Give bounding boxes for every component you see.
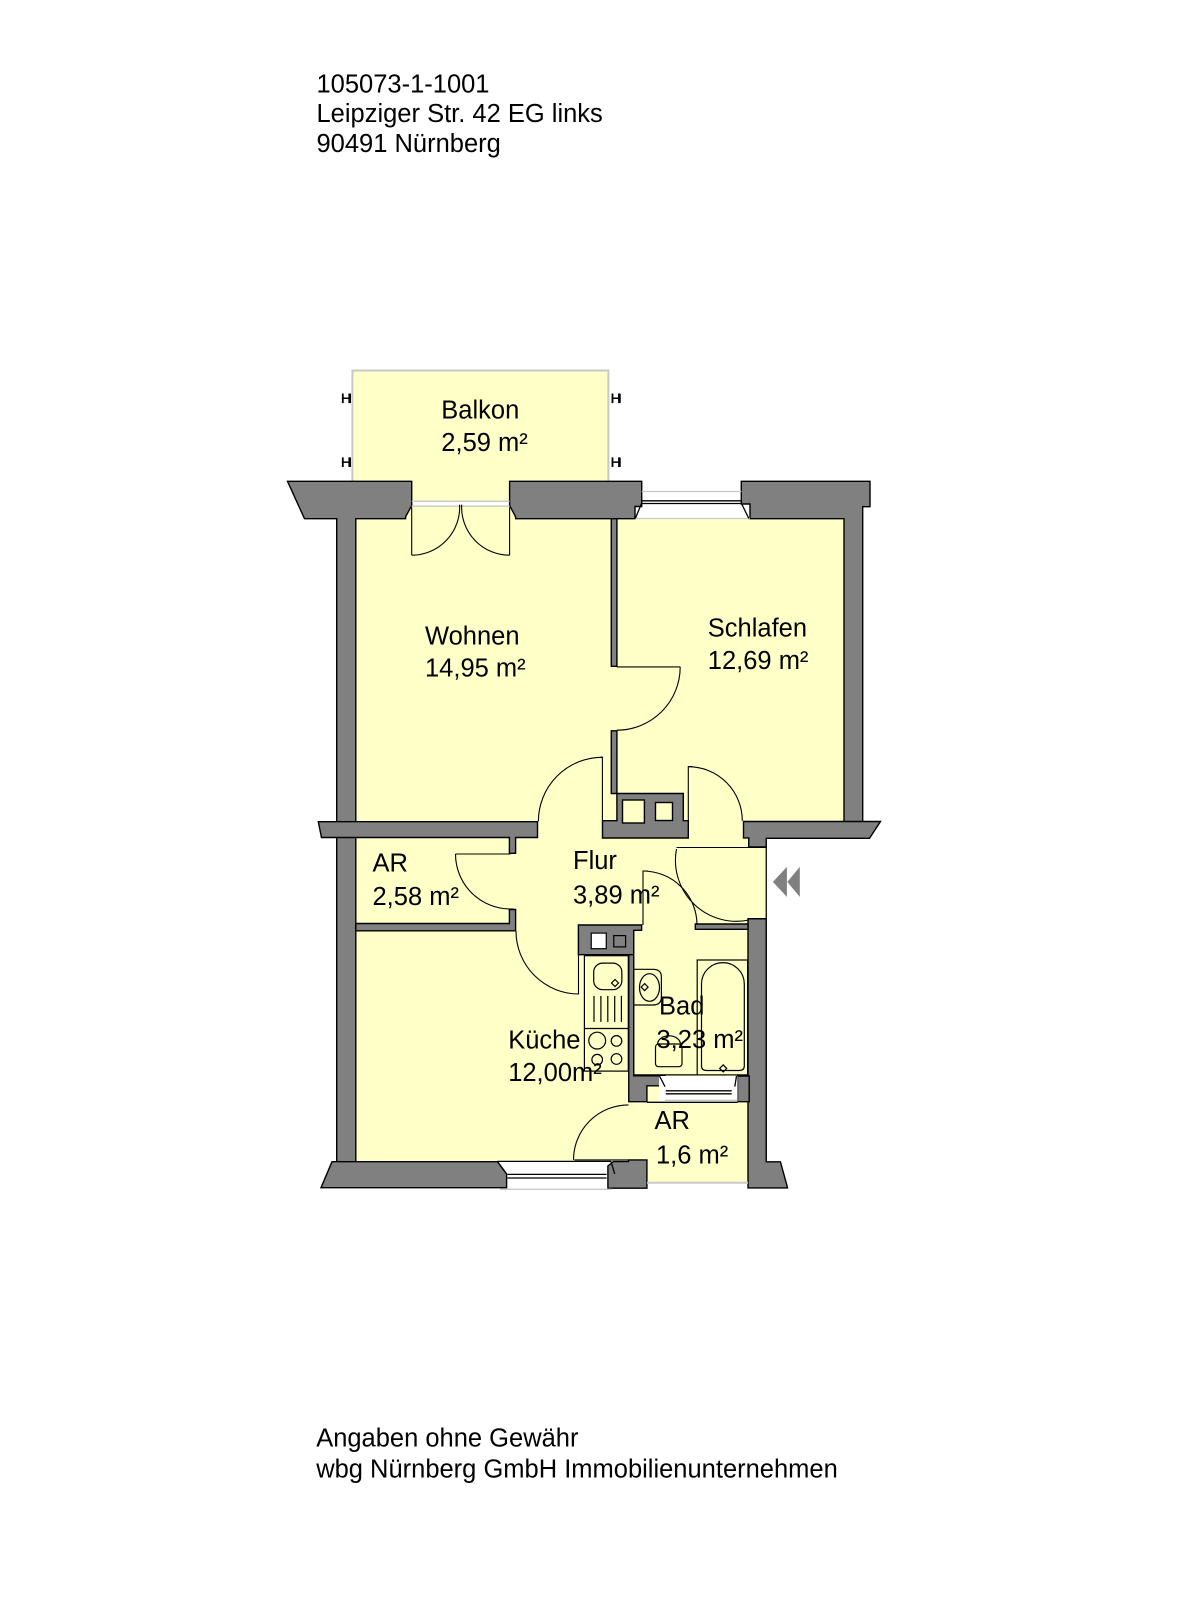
svg-text:2,58 m²: 2,58 m² (373, 883, 459, 911)
svg-text:Wohnen: Wohnen (425, 622, 520, 650)
svg-text:Balkon: Balkon (441, 397, 519, 425)
svg-text:3,89 m²: 3,89 m² (573, 882, 659, 910)
svg-text:Küche: Küche (508, 1027, 580, 1055)
svg-text:3,23 m²: 3,23 m² (657, 1026, 743, 1054)
svg-text:Schlafen: Schlafen (708, 614, 807, 642)
svg-text:2,59 m²: 2,59 m² (441, 429, 527, 457)
svg-text:Angaben ohne Gewähr: Angaben ohne Gewähr (316, 1425, 579, 1453)
svg-text:AR: AR (655, 1107, 690, 1135)
svg-text:Leipziger Str. 42 EG links: Leipziger Str. 42 EG links (317, 100, 603, 128)
svg-text:wbg Nürnberg GmbH Immobilienun: wbg Nürnberg GmbH Immobilienunternehmen (315, 1456, 838, 1484)
svg-text:Flur: Flur (573, 847, 617, 875)
svg-text:12,69 m²: 12,69 m² (708, 647, 809, 675)
svg-text:1,6 m²: 1,6 m² (656, 1142, 728, 1170)
svg-text:12,00m²: 12,00m² (508, 1059, 602, 1087)
svg-text:105073-1-1001: 105073-1-1001 (317, 71, 490, 99)
svg-text:Bad: Bad (659, 993, 704, 1021)
svg-text:AR: AR (373, 850, 408, 878)
svg-text:90491 Nürnberg: 90491 Nürnberg (317, 130, 501, 158)
svg-text:14,95 m²: 14,95 m² (425, 654, 526, 682)
